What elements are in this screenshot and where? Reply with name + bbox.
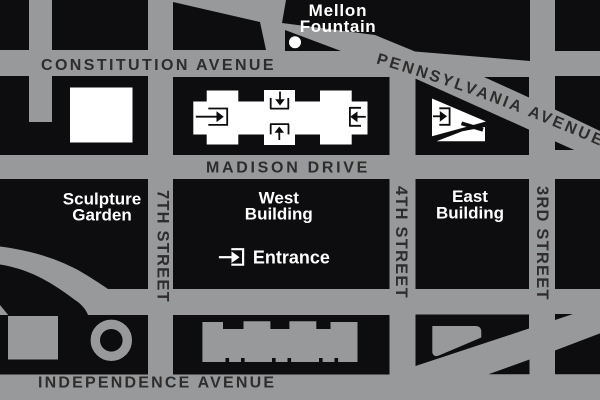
- svg-text:4TH STREET: 4TH STREET: [392, 186, 410, 299]
- svg-text:MADISON DRIVE: MADISON DRIVE: [206, 160, 370, 177]
- svg-text:Fountain: Fountain: [300, 17, 377, 36]
- svg-text:7TH STREET: 7TH STREET: [154, 190, 172, 303]
- svg-text:Building: Building: [245, 205, 313, 224]
- svg-text:Building: Building: [436, 204, 504, 223]
- svg-text:CONSTITUTION AVENUE: CONSTITUTION AVENUE: [41, 57, 276, 74]
- svg-text:Garden: Garden: [72, 206, 132, 225]
- svg-text:Entrance: Entrance: [253, 248, 330, 268]
- svg-text:INDEPENDENCE AVENUE: INDEPENDENCE AVENUE: [38, 375, 276, 392]
- svg-text:3RD STREET: 3RD STREET: [533, 186, 551, 301]
